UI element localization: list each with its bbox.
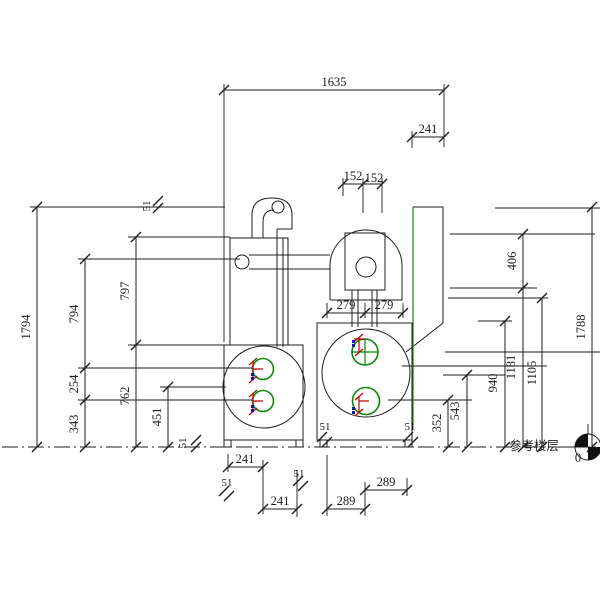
dim-label-height-inner-top: 406	[505, 252, 519, 271]
dim-label-height-body-top: 797	[118, 282, 132, 301]
side-nozzle-circle	[235, 255, 249, 269]
dim-label-hopper-left: 152	[344, 169, 363, 183]
dim-label-port-spacing: 254	[67, 374, 81, 394]
dim-label-foot-chain-left-a: 51	[222, 477, 233, 489]
dim-label-height-overall-left: 1794	[19, 314, 33, 340]
dome-shaft-circle	[356, 257, 376, 277]
dim-label-top-offset: 241	[419, 122, 438, 136]
dim-label-height-tank-top: 940	[486, 374, 500, 393]
cad-drawing: 1635 241 152 152 279 279 241 241 289 289…	[0, 0, 600, 600]
unit-right-tank-circle	[322, 329, 410, 417]
dim-label-height-port-center: 352	[430, 414, 444, 433]
datum-quadrant-bottom-right	[588, 447, 600, 460]
dim-label-height-pipe-center: 794	[67, 304, 81, 324]
dim-label-gap-top-left: 51	[141, 201, 153, 212]
unit-left-feet	[224, 440, 303, 447]
dim-label-height-drum-center: 451	[150, 408, 164, 427]
dim-label-foot-right-left: 51	[320, 421, 331, 433]
dim-label-hopper-right: 152	[365, 171, 384, 185]
dim-label-base-right-a: 289	[337, 494, 356, 508]
dim-label-base-left-a: 241	[236, 452, 255, 466]
boiler-body	[230, 238, 288, 345]
dim-label-overall-width: 1635	[322, 75, 347, 89]
pipe-elbow-circle	[272, 201, 284, 213]
dim-label-base-left-b: 241	[271, 494, 290, 508]
dim-label-base-right-b: 289	[377, 475, 396, 489]
dome-pipes	[352, 290, 377, 327]
dim-label-foot-right-right: 51	[405, 421, 416, 433]
base-unit-left	[223, 345, 305, 447]
base-unit-right	[317, 323, 412, 447]
machine-left	[230, 198, 330, 347]
datum-label: 参考楼层	[509, 438, 559, 453]
unit-right-feet	[320, 440, 412, 447]
dim-label-height-dome-base: 1105	[525, 361, 539, 386]
dome-inner-rect	[345, 233, 385, 290]
dim-label-pump-right: 279	[375, 298, 394, 312]
dim-label-height-overall-right: 1788	[574, 315, 588, 340]
dim-label-height-port-bottom: 343	[67, 415, 81, 434]
boiler-pipe-arch	[252, 198, 292, 238]
connecting-pipe	[249, 255, 330, 269]
dim-label-foot-chain-left-b: 51	[294, 468, 305, 480]
dim-label-height-body-bottom: 762	[118, 387, 132, 406]
dim-label-height-tank-center: 543	[448, 402, 462, 421]
dim-label-height-inner-bottom: 1181	[504, 355, 518, 380]
dim-label-gap-base-left: 51	[177, 438, 189, 449]
dim-label-pump-left: 279	[337, 298, 356, 312]
datum-quadrant-top-left	[575, 434, 588, 447]
boiler-pipes	[277, 229, 283, 347]
datum-value: 0	[575, 451, 581, 465]
